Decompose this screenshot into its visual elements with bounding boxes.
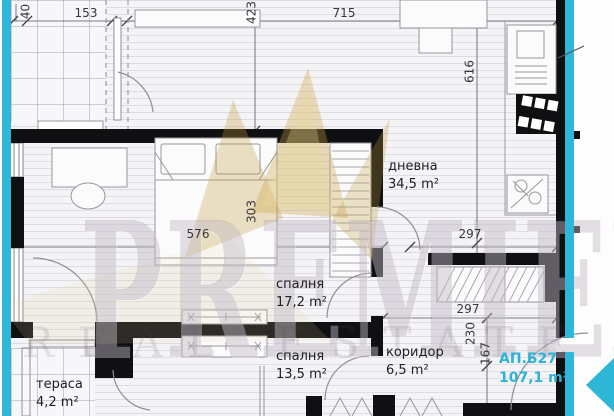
room-label-bedroom1: спалня 17,2 m² <box>276 276 327 312</box>
section-stripe-right-upper <box>565 0 574 338</box>
room-label-living: дневна 34,5 m² <box>388 158 439 194</box>
section-stripe-left <box>2 0 11 416</box>
unit-label: АП.Б27 107,1 m² <box>499 350 569 388</box>
dim-153: 153 <box>66 7 106 20</box>
room-name: дневна <box>388 158 439 176</box>
room-area: 34,5 m² <box>388 176 439 194</box>
room-area: 4,2 m² <box>36 394 83 412</box>
room-name: коридор <box>386 344 444 362</box>
dim-303: 303 <box>246 192 259 232</box>
room-label-terrace: тераса 4,2 m² <box>36 376 83 412</box>
room-name: спалня <box>276 348 327 366</box>
room-name: тераса <box>36 376 83 394</box>
dim-423: 423 <box>246 0 259 33</box>
room-label-bedroom2: спалня 13,5 m² <box>276 348 327 384</box>
unit-area: 107,1 m² <box>499 369 569 388</box>
unit-id: АП.Б27 <box>499 350 569 369</box>
dim-297-top: 297 <box>450 228 490 241</box>
room-name: спалня <box>276 276 327 294</box>
dim-616: 616 <box>464 52 477 92</box>
room-area: 6,5 m² <box>386 362 444 380</box>
dim-715: 715 <box>324 7 364 20</box>
room-area: 13,5 m² <box>276 366 327 384</box>
room-label-corridor: коридор 6,5 m² <box>386 344 444 380</box>
dim-167: 167 <box>480 334 493 374</box>
section-stripe-right-lower <box>565 352 574 416</box>
room-area: 17,2 m² <box>276 294 327 312</box>
dim-576: 576 <box>178 228 218 241</box>
dim-230: 230 <box>465 314 478 354</box>
dim-40: 40 <box>20 0 33 32</box>
floor-plan-page: PREMIER REAL ESTATE 40 153 423 715 616 3… <box>0 0 614 416</box>
